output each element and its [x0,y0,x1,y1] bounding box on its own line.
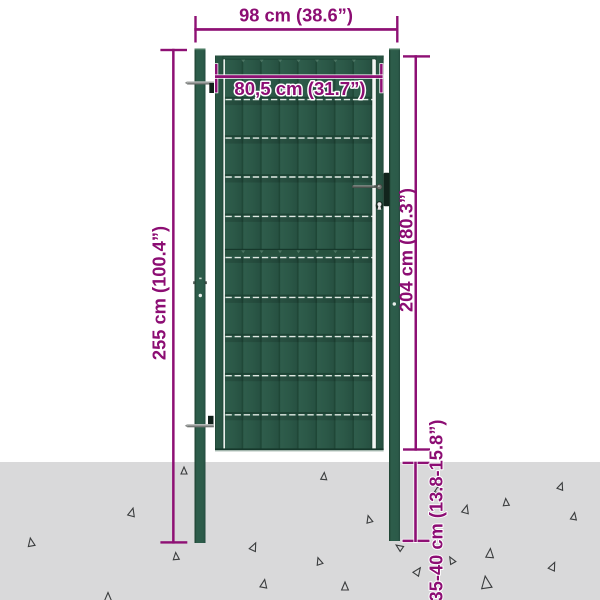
svg-text:80,5 cm (31.7”): 80,5 cm (31.7”) [234,78,365,99]
svg-text:98 cm (38.6”): 98 cm (38.6”) [239,5,353,26]
svg-text:35-40 cm (13.8-15.8”): 35-40 cm (13.8-15.8”) [425,420,446,600]
svg-text:255 cm (100.4”): 255 cm (100.4”) [149,226,170,360]
svg-text:204 cm (80.3”): 204 cm (80.3”) [395,188,416,312]
